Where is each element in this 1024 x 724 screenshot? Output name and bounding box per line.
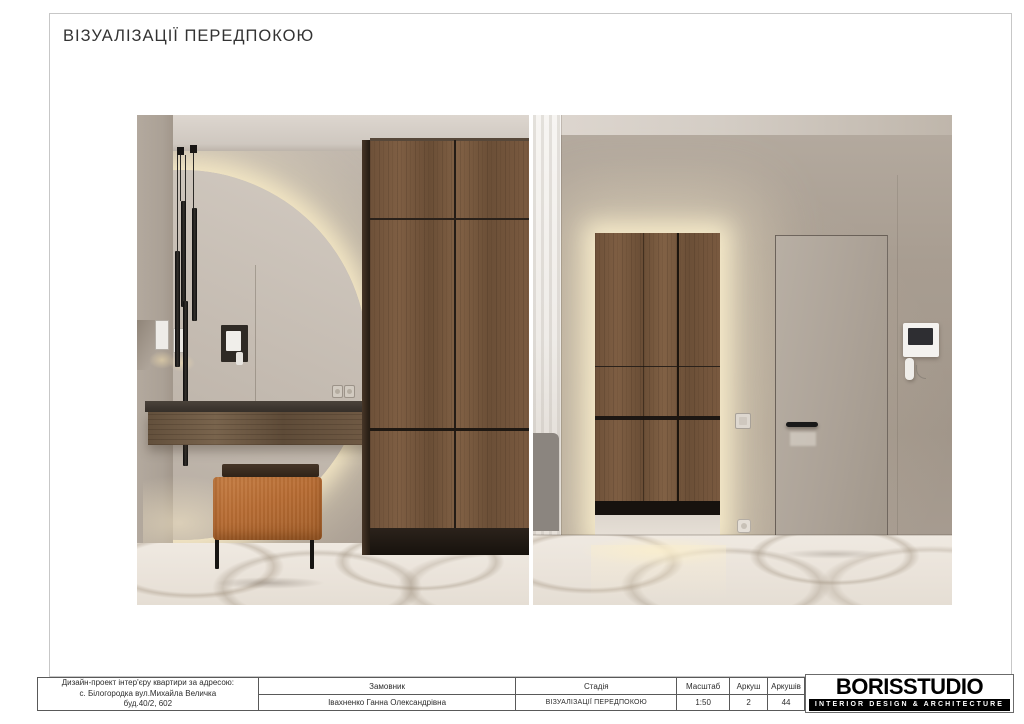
pendant-cable	[180, 155, 181, 201]
sheet-cell: Аркуш 2	[730, 678, 768, 710]
title-block: Дизайн-проект інтер'єру квартири за адре…	[37, 677, 805, 711]
sheets-total-cell: Аркушів 44	[768, 678, 804, 710]
address-line: буд.40/2, 602	[40, 699, 256, 709]
stage-header: Стадія	[516, 678, 676, 695]
page-title: ВІЗУАЛІЗАЦІЇ ПЕРЕДПОКОЮ	[63, 27, 314, 46]
console-countertop	[145, 401, 373, 412]
power-outlet	[332, 385, 343, 398]
light-switch	[735, 413, 751, 429]
wall-seam	[897, 175, 898, 551]
client-value: Івахненко Ганна Олександрівна	[259, 695, 516, 710]
distant-sofa	[533, 433, 559, 531]
client-header: Замовник	[259, 678, 516, 695]
stage-value: ВІЗУАЛІЗАЦІЇ ПЕРЕДПОКОЮ	[516, 695, 676, 710]
pendant-light	[192, 208, 197, 321]
wall-corner	[561, 115, 562, 605]
reflection-plinth	[595, 501, 720, 515]
pendant-cable	[177, 155, 178, 251]
sheets-total-header: Аркушів	[768, 678, 804, 695]
reflection-groove	[643, 233, 644, 503]
scale-value: 1:50	[677, 695, 729, 710]
concealed-door	[775, 235, 888, 551]
render-hallway-console-view	[137, 115, 529, 605]
power-outlet	[737, 519, 751, 533]
intercom-handset	[905, 358, 914, 380]
address-line: с. Білогородка вул.Михайла Величка	[40, 689, 256, 699]
intercom-screen	[908, 328, 933, 345]
wardrobe-groove	[370, 428, 529, 431]
door-floor-shadow	[779, 549, 889, 559]
door-handle	[786, 422, 818, 427]
render-hallway-entrance-view	[533, 115, 952, 605]
scale-cell: Масштаб 1:50	[677, 678, 730, 710]
client-cell: Замовник Івахненко Ганна Олександрівна	[259, 678, 517, 710]
bench-seat	[213, 477, 322, 540]
sheet-value: 2	[730, 695, 767, 710]
wardrobe-top-edge	[370, 138, 529, 141]
sheet-header: Аркуш	[730, 678, 767, 695]
led-floor-glow	[591, 545, 726, 600]
wardrobe	[370, 140, 529, 555]
sheets-total-value: 44	[768, 695, 804, 710]
studio-logo-tagline: INTERIOR DESIGN & ARCHITECTURE	[809, 699, 1010, 711]
sconce-glow	[169, 354, 195, 372]
reflection-groove	[595, 366, 720, 367]
stage-cell: Стадія ВІЗУАЛІЗАЦІЇ ПЕРЕДПОКОЮ	[516, 678, 677, 710]
mirror-reflection-line	[255, 265, 256, 405]
pendant-light	[181, 201, 186, 307]
wall-control-panel	[155, 320, 169, 350]
intercom-handset	[236, 352, 243, 365]
mirror-reflection-wardrobe	[595, 233, 720, 503]
reflection-groove	[677, 233, 679, 503]
window-light-strip	[533, 115, 561, 605]
handle-reflection	[790, 432, 816, 446]
studio-logo-name: BORISSTUDIO	[809, 676, 1010, 698]
wardrobe-groove	[454, 140, 456, 555]
rect-backlit-mirror	[595, 233, 720, 538]
console-drawer	[148, 412, 373, 445]
address-line: Дизайн-проект інтер'єру квартири за адре…	[40, 678, 256, 688]
reflection-band	[595, 416, 720, 420]
pendant-ceiling-mount	[177, 147, 184, 155]
scale-header: Масштаб	[677, 678, 729, 695]
ceiling	[533, 115, 952, 135]
bench-back-rail	[222, 464, 319, 477]
power-outlet	[344, 385, 355, 398]
pendant-cable	[193, 153, 194, 208]
bench-floor-shadow	[215, 577, 325, 589]
baseboard-shadow	[533, 534, 952, 536]
studio-logo: BORISSTUDIO INTERIOR DESIGN & ARCHITECTU…	[805, 674, 1014, 713]
video-intercom	[903, 323, 939, 357]
intercom-panel	[226, 331, 241, 351]
wardrobe-groove	[370, 218, 529, 220]
project-address-cell: Дизайн-проект інтер'єру квартири за адре…	[38, 678, 259, 710]
pendant-light	[175, 251, 180, 367]
wardrobe-plinth	[370, 528, 529, 555]
pendant-ceiling-mount	[190, 145, 197, 153]
